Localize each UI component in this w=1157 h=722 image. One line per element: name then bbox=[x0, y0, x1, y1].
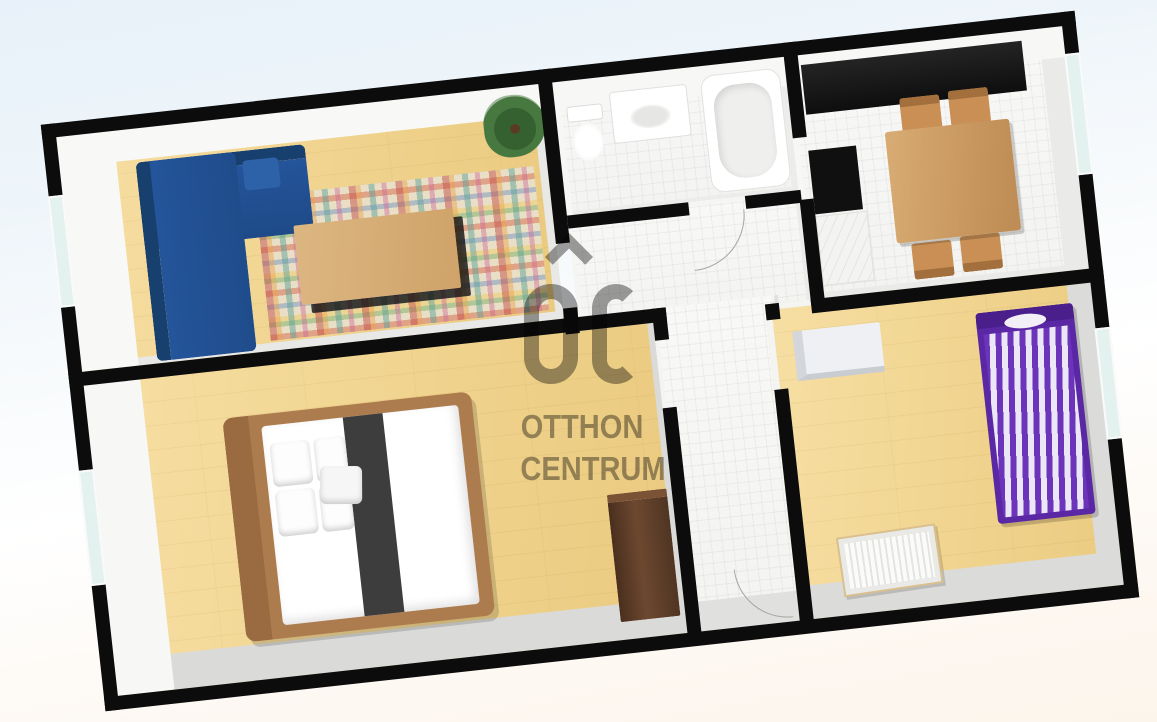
bathtub-basin bbox=[712, 81, 780, 181]
watermark: OTTHON CENTRUM bbox=[512, 238, 652, 500]
dresser bbox=[792, 322, 885, 381]
dining-chair bbox=[960, 232, 1004, 272]
oc-roof-monogram-icon bbox=[545, 233, 593, 281]
logo-letter-o bbox=[524, 284, 578, 384]
dining-table bbox=[885, 119, 1022, 244]
sink-vanity bbox=[609, 84, 692, 144]
bed-pillow bbox=[269, 439, 314, 487]
bed-pillow-small bbox=[320, 466, 362, 504]
bed-pillow bbox=[274, 487, 319, 537]
logo-letter-c bbox=[592, 284, 640, 384]
watermark-line2: CENTRUM bbox=[520, 450, 643, 488]
worktop bbox=[815, 211, 874, 286]
watermark-line1: OTTHON bbox=[520, 408, 643, 446]
wall-corridor-right bbox=[765, 303, 781, 320]
stove bbox=[808, 146, 863, 215]
floor-plan-page: { "watermark": { "line1": "OTTHON", "lin… bbox=[0, 0, 1157, 722]
dining-chair bbox=[911, 240, 955, 280]
sofa-cushion bbox=[242, 157, 281, 191]
